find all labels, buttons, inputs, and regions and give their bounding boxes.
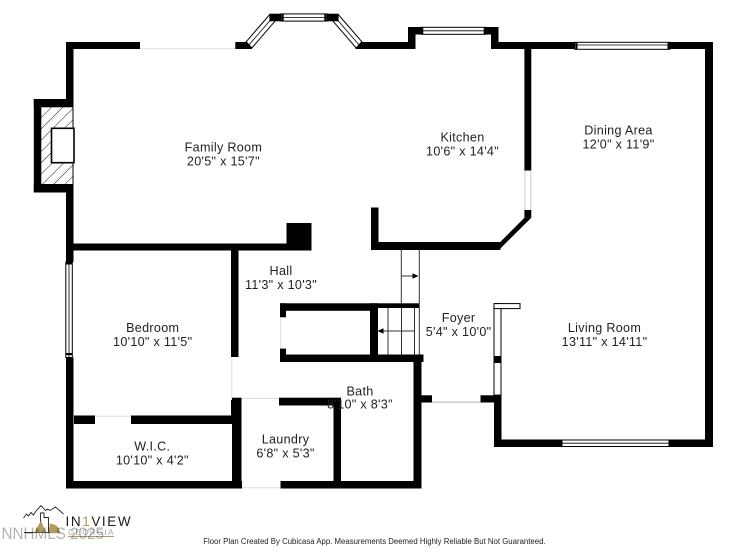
svg-text:12'0" x 11'9": 12'0" x 11'9": [582, 138, 654, 152]
svg-text:Laundry: Laundry: [262, 433, 310, 447]
svg-text:20'5" x 15'7": 20'5" x 15'7": [187, 155, 260, 169]
svg-text:8'10" x 8'3": 8'10" x 8'3": [327, 398, 393, 412]
svg-text:11'3" x 10'3": 11'3" x 10'3": [245, 278, 317, 292]
svg-text:Bedroom: Bedroom: [126, 321, 179, 335]
svg-text:Family Room: Family Room: [185, 140, 262, 154]
svg-text:Bath: Bath: [346, 385, 373, 399]
svg-text:Floor Plan Created By Cubicasa: Floor Plan Created By Cubicasa App. Meas…: [203, 537, 545, 546]
svg-text:10'10" x 11'5": 10'10" x 11'5": [113, 335, 192, 349]
svg-text:NNHMLS 2025: NNHMLS 2025: [2, 525, 105, 543]
svg-text:10'10" x 4'2": 10'10" x 4'2": [116, 454, 189, 468]
svg-text:Living Room: Living Room: [568, 321, 641, 335]
svg-text:Kitchen: Kitchen: [440, 130, 484, 144]
svg-text:Foyer: Foyer: [442, 311, 476, 325]
svg-text:Dining Area: Dining Area: [584, 124, 652, 138]
svg-text:W.I.C.: W.I.C.: [134, 440, 170, 454]
svg-text:6'8" x 5'3": 6'8" x 5'3": [256, 447, 314, 461]
svg-text:10'6" x 14'4": 10'6" x 14'4": [426, 145, 499, 159]
svg-text:5'4" x 10'0": 5'4" x 10'0": [426, 325, 492, 339]
svg-text:13'11" x 14'11": 13'11" x 14'11": [562, 335, 648, 349]
svg-text:Hall: Hall: [270, 264, 293, 278]
